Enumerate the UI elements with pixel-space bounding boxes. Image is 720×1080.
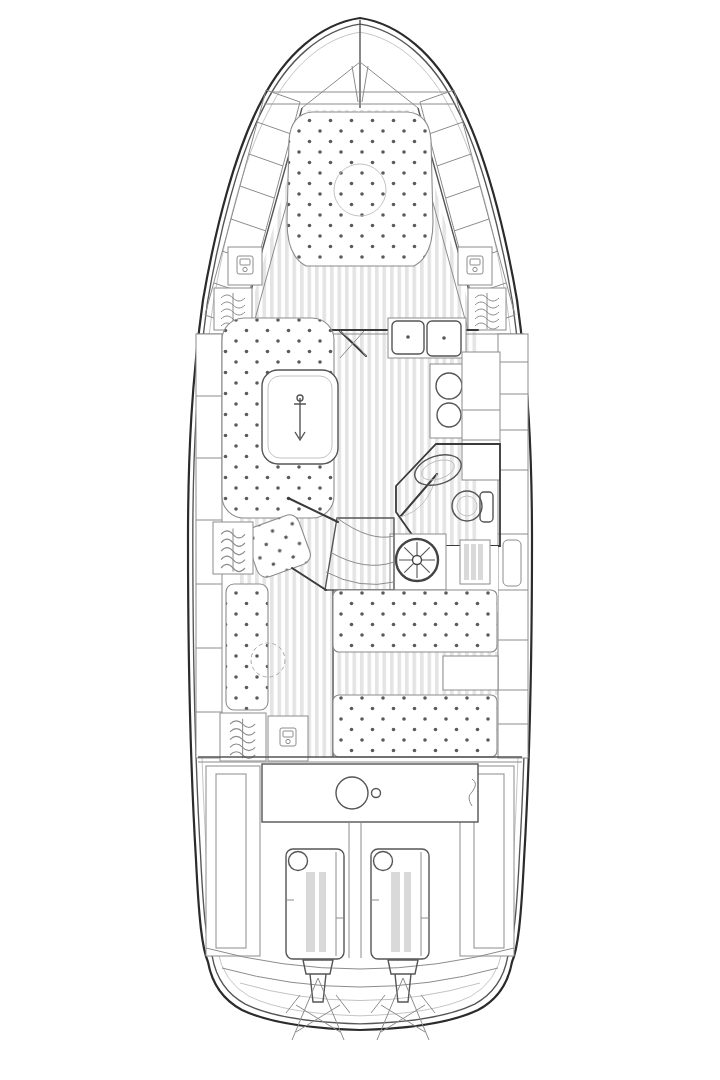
forward-locker-port [228, 247, 262, 285]
wardrobe-forward-starboard [468, 288, 506, 330]
cockpit-locker-port [206, 766, 260, 956]
aft-berth-rear [333, 695, 497, 757]
dinette-table [262, 370, 338, 464]
engine-port [286, 849, 344, 959]
boat-floorplan-drawing: Motor yacht interior floor plan — top-do… [0, 0, 720, 1080]
cockpit [206, 764, 514, 958]
shower-grate [460, 540, 490, 584]
engine-hatch [262, 764, 478, 822]
steering-wheel [396, 539, 438, 581]
floorplan-canvas: Motor yacht interior floor plan — top-do… [0, 0, 720, 1080]
bench-seat [226, 584, 268, 710]
aft-utility-unit [268, 716, 308, 761]
helm-station [390, 534, 446, 590]
wardrobe-mid-port [213, 522, 253, 574]
aft-berth-forward [333, 590, 497, 652]
propeller-starboard [371, 978, 435, 1040]
v-berth-bed [287, 112, 433, 266]
forward-locker-starboard [458, 247, 492, 285]
engine-starboard [371, 849, 429, 959]
propeller-port [286, 978, 350, 1040]
wardrobe-aft-port [220, 713, 266, 761]
galley-cabinets [462, 352, 500, 480]
head-tall-locker [503, 540, 521, 586]
